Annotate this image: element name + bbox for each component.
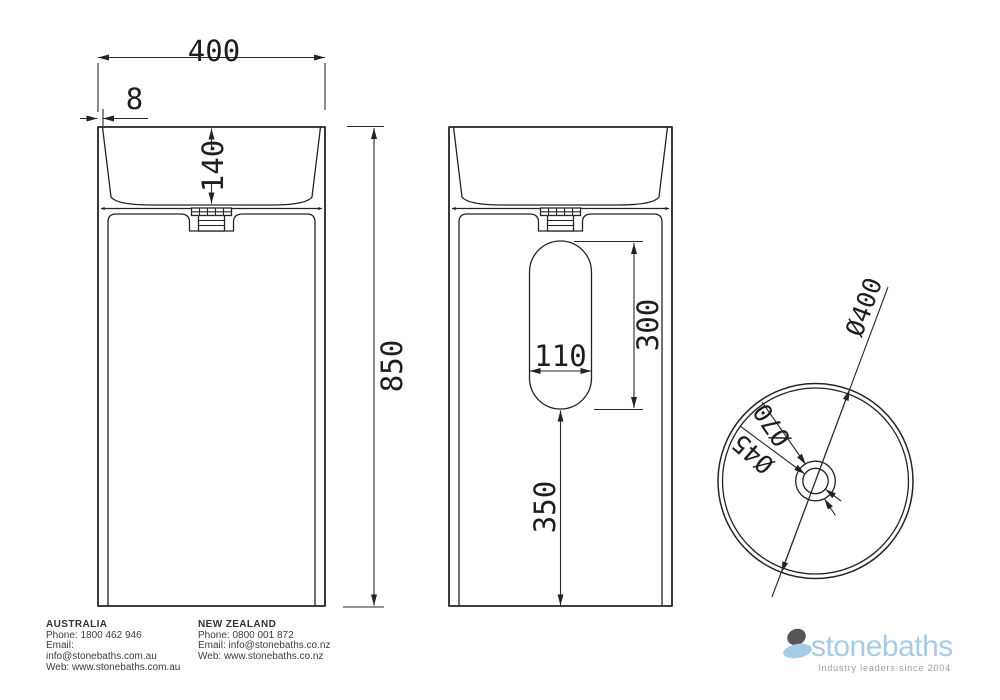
logo-mark-blue-ellipse (782, 642, 813, 661)
contact-australia: AUSTRALIA Phone: 1800 462 946 Email: inf… (46, 620, 180, 674)
dim-slot-bottom-offset-value: 350 (528, 481, 562, 533)
contact-new-zealand: NEW ZEALAND Phone: 0800 001 872 Email: i… (198, 620, 330, 663)
dim-slot-height-value: 300 (631, 299, 665, 351)
dim-rim-thickness-value: 8 (126, 82, 143, 116)
drain-pipe (199, 215, 225, 231)
contact-australia-web: Web: www.stonebaths.com.au (46, 663, 180, 674)
dim-rim-thickness: 8 (80, 82, 148, 126)
dim-slot-height: 300 (574, 242, 665, 410)
dim-overall-height-value: 850 (375, 340, 409, 392)
basin-interior-outline (454, 127, 668, 205)
technical-drawing-sheet: 400 8 140 850 (0, 0, 1000, 700)
drain-pipe (548, 215, 574, 231)
drawing-svg: 400 8 140 850 (0, 0, 1000, 700)
dim-overall-height: 850 (343, 127, 409, 608)
dim-basin-depth: 140 (196, 129, 230, 204)
stonebaths-logo: stonebaths Industry leaders since 2004 (780, 625, 980, 685)
dim-basin-depth-value: 140 (196, 140, 230, 192)
dim-slot-width-value: 110 (534, 339, 586, 373)
logo-tagline: Industry leaders since 2004 (818, 663, 951, 673)
rear-slot-cutout (530, 241, 592, 409)
logo-wordmark: stonebaths (811, 632, 953, 662)
dim-overall-width-value: 400 (188, 34, 240, 68)
pedestal-panel-outline (108, 214, 315, 606)
plan-view: Ø400 Ø70 Ø45 (718, 274, 913, 597)
dim-slot-width: 110 (530, 339, 592, 373)
dim-slot-bottom-offset: 350 (528, 411, 562, 606)
contact-nz-web: Web: www.stonebaths.co.nz (198, 652, 330, 663)
